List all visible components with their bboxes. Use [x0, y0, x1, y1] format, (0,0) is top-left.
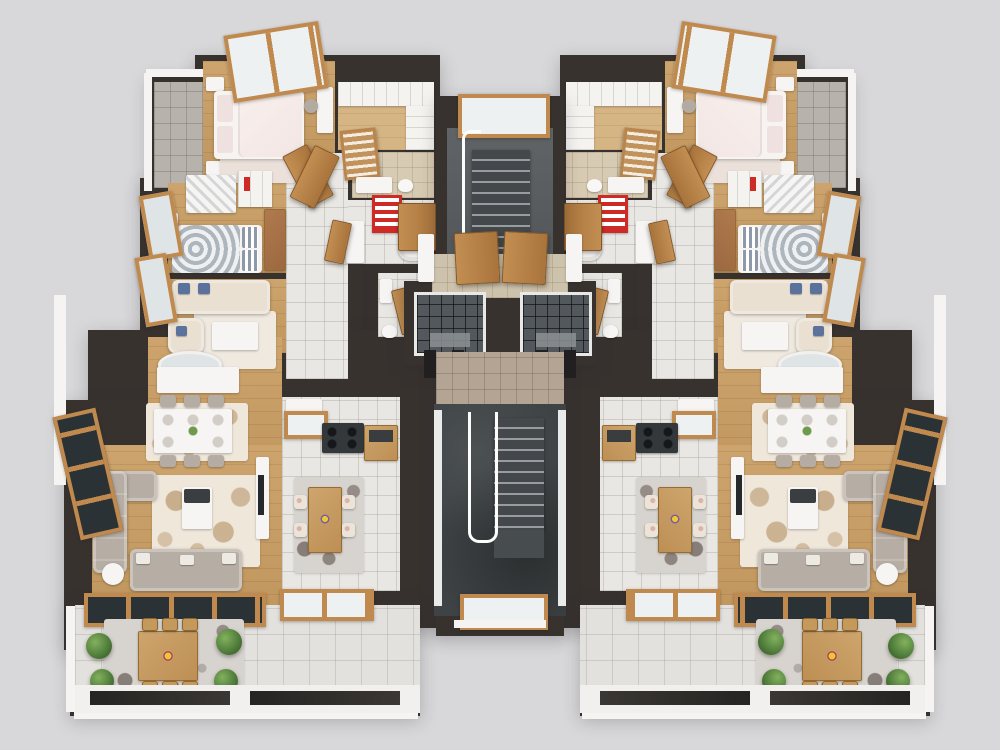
terrace-chair — [842, 618, 858, 631]
lobby-pillar — [566, 234, 582, 282]
wardrobe — [186, 175, 236, 213]
bathroom-vanity — [608, 177, 644, 193]
side-balcony-floor — [796, 82, 846, 188]
cream-sofa — [730, 280, 828, 314]
dining-chair — [160, 455, 176, 467]
lobby-double-door — [502, 231, 549, 285]
louvered-door — [339, 127, 380, 180]
blue-pillow — [198, 283, 210, 294]
lower-staircase — [494, 418, 544, 530]
stairwell-ledge — [558, 410, 566, 606]
terrace-plant — [888, 633, 914, 659]
striped-pillow — [742, 227, 758, 248]
entrance-corridor-floor — [436, 352, 564, 406]
dining-chair — [776, 395, 792, 407]
dining-chair — [824, 455, 840, 467]
kitchen-cabinet — [602, 425, 636, 461]
flower-centerpiece — [163, 651, 173, 661]
coffee-table — [788, 487, 818, 529]
buffet-console — [761, 367, 843, 393]
dining-table — [154, 409, 232, 453]
bed-pillow — [767, 95, 783, 122]
round-side-table — [102, 563, 124, 585]
kitchen-chair — [645, 495, 658, 509]
bed-pillow — [217, 126, 233, 153]
kitchen-chair — [645, 523, 658, 537]
dining-chair — [776, 455, 792, 467]
balcony-parapet-west — [848, 73, 856, 191]
elevator-door-post — [564, 350, 576, 378]
flower-centerpiece — [670, 514, 680, 524]
kitchen-chair — [342, 523, 355, 537]
round-side-table — [876, 563, 898, 585]
sofa-pillow — [764, 553, 778, 564]
dining-chair — [184, 455, 200, 467]
kitchen-window — [626, 589, 720, 621]
stair-landing — [494, 530, 544, 558]
floorplan-render — [0, 0, 1000, 750]
flower-centerpiece — [320, 514, 330, 524]
kitchen-table — [308, 487, 342, 553]
single-bed — [172, 225, 262, 273]
kitchen-chair — [294, 495, 307, 509]
flower-centerpiece — [827, 651, 837, 661]
elevator-shaft — [520, 292, 592, 356]
exterior-ledge-terrace-west — [924, 606, 934, 712]
sitting-coffee-table — [212, 322, 258, 350]
red-towel-ladder — [598, 195, 628, 233]
elevator-car-floor — [536, 333, 576, 347]
single-bed — [738, 225, 828, 273]
armchair — [168, 318, 204, 354]
cream-sofa — [172, 280, 270, 314]
bed-duvet — [238, 93, 302, 157]
balcony-parapet-west — [144, 73, 152, 191]
appliance-inset — [369, 430, 393, 442]
dining-chair — [800, 395, 816, 407]
kitchen-cabinet — [364, 425, 398, 461]
parapet-glass-panel — [90, 691, 230, 705]
blue-pillow — [176, 326, 187, 336]
two-seat-sofa — [758, 549, 870, 591]
terrace-chair — [182, 618, 198, 631]
kitchen-window — [280, 589, 374, 621]
terrace-plant — [86, 633, 112, 659]
red-books — [244, 177, 250, 191]
buffet-console — [157, 367, 239, 393]
two-seat-sofa — [130, 549, 242, 591]
bathroom-vanity — [356, 177, 392, 193]
elevator-car-floor — [430, 333, 470, 347]
blue-pillow — [790, 283, 802, 294]
terrace-chair — [802, 618, 818, 631]
cooktop-unit — [322, 423, 364, 453]
desk-chair — [682, 99, 696, 113]
appliance-inset — [607, 430, 631, 442]
closet-shelving — [406, 106, 434, 150]
kitchen-pass-window — [672, 411, 716, 439]
kitchen-chair — [342, 495, 355, 509]
terrace-table — [138, 631, 198, 681]
sofa-pillow — [806, 555, 820, 565]
terrace-chair — [162, 618, 178, 631]
sofa-pillow — [222, 553, 236, 564]
kitchen-chair — [294, 523, 307, 537]
dining-chair — [208, 455, 224, 467]
bed-pillow — [767, 126, 783, 153]
striped-pillow — [242, 250, 258, 271]
elevator-shaft — [414, 292, 486, 356]
terrace-table — [802, 631, 862, 681]
desk-chair — [304, 99, 318, 113]
stairwell-ledge — [434, 410, 442, 606]
vanity-desk — [317, 87, 333, 133]
dining-chair — [160, 395, 176, 407]
nightstand — [776, 77, 794, 91]
terrace-chair — [822, 618, 838, 631]
sofa-pillow — [136, 553, 150, 564]
terrace-chair — [142, 618, 158, 631]
sofa-pillow — [180, 555, 194, 565]
coffee-table — [182, 487, 212, 529]
dining-chair — [800, 455, 816, 467]
balcony-parapet-north — [146, 69, 210, 77]
dining-chair — [184, 395, 200, 407]
dark-tray — [790, 489, 816, 503]
louvered-door — [619, 127, 660, 180]
stair-railing — [468, 412, 498, 543]
cooktop-unit — [636, 423, 678, 453]
parapet-glass-panel — [770, 691, 910, 705]
dining-chair — [824, 395, 840, 407]
kitchen-table — [658, 487, 692, 553]
tv-screen — [736, 475, 742, 515]
double-bed — [696, 91, 786, 159]
wooden-bench — [714, 209, 736, 271]
elevator-door-post — [424, 350, 436, 378]
window-sill — [454, 620, 546, 628]
balcony-parapet-north — [790, 69, 854, 77]
dining-chair — [208, 395, 224, 407]
red-books — [750, 177, 756, 191]
kitchen-chair — [693, 523, 706, 537]
wc-toilet — [603, 325, 618, 338]
tv-screen — [258, 475, 264, 515]
vanity-desk — [667, 87, 683, 133]
terrace-plant — [216, 629, 242, 655]
bed-pillow — [217, 95, 233, 122]
closet-shelving — [566, 82, 662, 106]
armchair — [796, 318, 832, 354]
wooden-bench — [264, 209, 286, 271]
closet-shelving — [566, 106, 594, 150]
toilet — [398, 179, 413, 192]
dark-tray — [184, 489, 210, 503]
lobby-pillar — [418, 234, 434, 282]
kitchen-chair — [693, 495, 706, 509]
terrace-plant — [758, 629, 784, 655]
striped-pillow — [242, 227, 258, 248]
bookshelf — [728, 171, 762, 207]
sitting-coffee-table — [742, 322, 788, 350]
blue-pillow — [813, 326, 824, 336]
nightstand — [206, 77, 224, 91]
lobby-double-door — [454, 231, 501, 285]
parapet-glass-panel — [600, 691, 750, 705]
bed-duvet — [698, 93, 762, 157]
toilet — [587, 179, 602, 192]
double-bed — [214, 91, 304, 159]
sofa-pillow — [850, 553, 864, 564]
closet-shelving — [338, 82, 434, 106]
wc-toilet — [382, 325, 397, 338]
blue-pillow — [178, 283, 190, 294]
dining-table — [768, 409, 846, 453]
wardrobe — [764, 175, 814, 213]
striped-pillow — [742, 250, 758, 271]
blue-pillow — [810, 283, 822, 294]
parapet-glass-panel — [250, 691, 400, 705]
side-balcony-floor — [154, 82, 204, 188]
wc-sink — [608, 279, 620, 303]
